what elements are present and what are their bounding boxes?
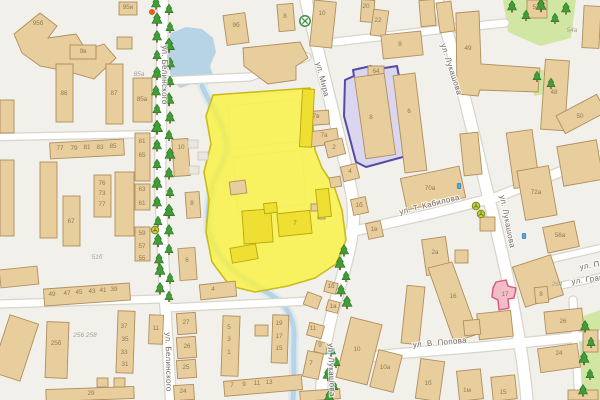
building-label: 1м [463, 387, 471, 394]
building-label: 77 [98, 201, 106, 208]
building-label: 15 [275, 345, 283, 352]
building-label: 39 [110, 286, 118, 293]
building-label: 29 [87, 390, 95, 397]
building[interactable] [480, 217, 495, 231]
street-label: ул. Лукашова [326, 343, 337, 397]
building-label: 81 [83, 144, 91, 151]
building[interactable] [477, 310, 514, 339]
building-label: 87 [110, 90, 118, 97]
transit-stop-icon[interactable] [457, 183, 461, 188]
building[interactable] [491, 375, 517, 400]
building-label: 55 [138, 255, 146, 262]
building-label: 9б [232, 21, 240, 29]
building-label: 7а [320, 132, 328, 139]
building[interactable] [0, 160, 14, 236]
building-label: 8 [283, 13, 287, 20]
shed [189, 166, 199, 174]
building-label: 77 [56, 145, 64, 152]
building[interactable] [0, 100, 14, 133]
building[interactable] [419, 0, 436, 27]
building-label: 63 [138, 186, 146, 193]
building-label: 1б [327, 282, 335, 290]
building-label: 7 [293, 220, 297, 227]
building-label: 11 [153, 325, 160, 332]
building-label: 31 [121, 361, 129, 368]
building-label: 2а [431, 249, 439, 256]
area-label: 85а [134, 71, 145, 78]
building[interactable] [456, 369, 483, 400]
building-label: 41 [99, 287, 107, 294]
building-label: 13 [265, 379, 273, 386]
building-label: 11 [254, 380, 261, 387]
building-label: 24 [555, 350, 563, 357]
building-label: 35 [121, 336, 129, 343]
building-label: 10 [318, 10, 326, 17]
building-label: 7в [313, 113, 321, 120]
building-label: 49 [48, 291, 56, 298]
building-label: 7 [309, 360, 313, 367]
building-label: 57 [138, 243, 146, 250]
building[interactable] [255, 325, 268, 336]
building-label: 95б [33, 19, 44, 27]
building[interactable] [538, 343, 581, 372]
building[interactable] [45, 322, 69, 379]
building-label: 10а [380, 364, 391, 371]
selected-building[interactable] [316, 188, 332, 217]
building-label: 9 [242, 381, 246, 388]
area-label: 51б [92, 253, 103, 261]
building-label: 50 [576, 113, 584, 120]
building-label: 16 [449, 293, 457, 300]
building-label: 1б [424, 379, 432, 387]
building[interactable] [40, 162, 57, 238]
building-label: 73 [98, 190, 106, 197]
building-label: 8 [190, 200, 194, 207]
crossing-icon[interactable] [300, 16, 310, 26]
building-label: 56а [555, 232, 566, 239]
building-label: 26 [183, 343, 191, 350]
building[interactable] [97, 378, 108, 387]
building-label: 9в [80, 48, 88, 55]
building-label: 47 [63, 290, 71, 297]
building-label: 52 [532, 4, 540, 11]
building-label: 8 [398, 41, 402, 48]
building-label: 6 [185, 257, 189, 264]
building[interactable] [582, 6, 600, 49]
building-label: 4 [211, 286, 215, 293]
building-label: 17 [275, 333, 283, 340]
building[interactable] [117, 37, 132, 49]
map-canvas[interactable]: 95б95и9в868785а9б8102022852494850646870а… [0, 0, 600, 400]
building-label: 22 [374, 17, 382, 24]
building-label: 72а [531, 189, 542, 196]
building-label: 37 [120, 323, 128, 330]
building-label: 1б [355, 201, 363, 209]
building-label: 76 [98, 180, 106, 187]
building-label: 6 [407, 108, 411, 115]
building-label: 11 [310, 325, 317, 332]
building[interactable] [463, 319, 480, 336]
building[interactable] [223, 13, 249, 46]
building-label: 9 [318, 342, 322, 349]
building-label: 48 [550, 89, 558, 96]
street-label: ул. Белинского [163, 332, 173, 392]
building-label: 33 [120, 349, 128, 356]
building-label: 4 [348, 168, 352, 175]
building-label: 20 [362, 3, 370, 10]
building-label: 8 [369, 114, 373, 121]
building-label: 43 [88, 288, 96, 295]
building[interactable] [557, 140, 600, 186]
building-label: 17 [501, 291, 509, 298]
building-label: 10 [177, 144, 185, 151]
bush-icon[interactable] [151, 226, 159, 234]
building-label: 85а [137, 96, 148, 103]
building-label: 8 [539, 291, 543, 298]
building[interactable] [114, 378, 125, 387]
building[interactable] [178, 247, 197, 280]
building[interactable] [455, 250, 468, 263]
building-label: 86 [60, 90, 68, 97]
building-label: 24 [179, 388, 187, 395]
area-label: 264 [551, 281, 563, 288]
alert-icon[interactable] [149, 9, 154, 14]
building-label: 1в [371, 226, 379, 233]
building-label: 65 [138, 152, 146, 159]
building-label: 45 [75, 289, 83, 296]
building[interactable] [199, 281, 236, 300]
building[interactable] [115, 172, 134, 236]
building-label: 85 [109, 143, 117, 150]
building-label: 15 [499, 389, 507, 396]
building-label: 67 [67, 218, 75, 225]
area-label: 54а [567, 27, 578, 34]
building[interactable] [229, 180, 247, 195]
bush-icon[interactable] [472, 202, 480, 210]
building-label: 27 [182, 319, 190, 326]
building-label: 2 [332, 144, 336, 151]
map-viewport[interactable]: 95б95и9в868785а9б8102022852494850646870а… [0, 0, 600, 400]
selected-building[interactable] [242, 209, 273, 244]
building-label: 26 [559, 318, 567, 325]
building-label: 19 [275, 320, 283, 327]
shed [188, 140, 198, 148]
building[interactable] [381, 31, 423, 59]
selected-building[interactable] [264, 202, 278, 213]
building-label: 59 [138, 230, 146, 237]
building-label: 25б [51, 339, 62, 347]
building-label: 3 [227, 336, 231, 343]
building-label: 61 [138, 200, 146, 207]
building-label: 81 [138, 138, 146, 145]
building-label: 10 [353, 346, 361, 353]
building-label: 79 [70, 145, 78, 152]
building[interactable] [460, 132, 482, 176]
area-label: 256 258 [72, 332, 97, 339]
road [0, 134, 152, 137]
building-label: 49 [464, 45, 472, 52]
building[interactable] [329, 176, 342, 188]
building-label: 83 [96, 144, 104, 151]
building-label: 1а [329, 303, 337, 310]
building[interactable] [310, 0, 337, 48]
shed [198, 152, 208, 160]
building-label: 64 [372, 68, 380, 75]
street-label: ул. Белинского [160, 45, 169, 105]
building-label: 1 [227, 349, 231, 356]
building-label: 5 [227, 324, 231, 331]
building-label: 95и [123, 4, 134, 11]
building-label: 7 [230, 382, 234, 389]
bush-icon[interactable] [477, 210, 485, 218]
building-label: 70а [425, 185, 436, 192]
building-label: 25 [182, 364, 190, 371]
building[interactable] [0, 266, 39, 288]
transit-stop-icon[interactable] [522, 233, 526, 238]
